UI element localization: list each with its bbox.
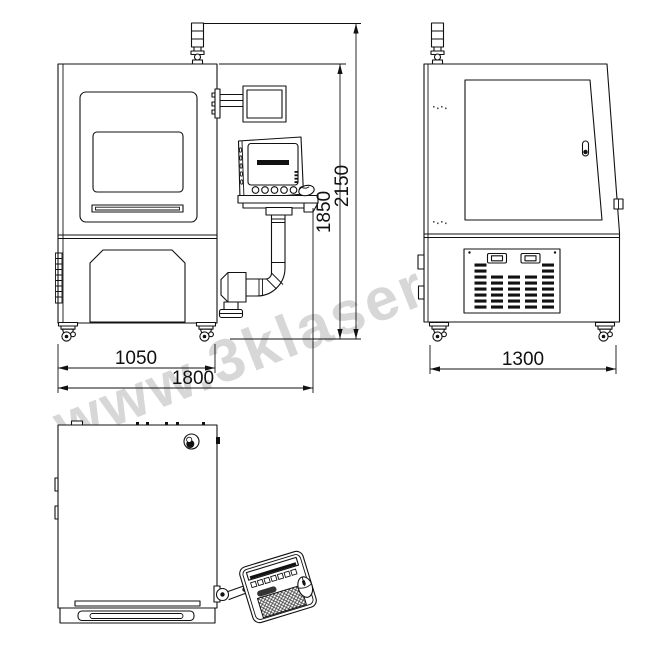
front-cabinet-body xyxy=(58,64,217,323)
front-view xyxy=(56,23,319,341)
side-view xyxy=(418,23,623,341)
vent-latch xyxy=(521,254,540,264)
dim-text-overall-height: 2150 xyxy=(332,165,353,207)
duct-elbow xyxy=(221,273,246,303)
console-top-view xyxy=(238,550,318,625)
panel-shelf xyxy=(238,196,318,204)
caster-wheel xyxy=(430,323,449,342)
vent-panel xyxy=(464,249,560,313)
top-cabinet-body xyxy=(58,425,217,608)
exhaust-duct xyxy=(220,208,293,318)
caster-wheel xyxy=(596,323,615,342)
vent-latch xyxy=(488,254,507,264)
dim-text-side-width: 1300 xyxy=(502,349,544,370)
monitor-arm-assembly xyxy=(212,86,286,122)
control-panel xyxy=(238,137,318,212)
signal-tower-lamp xyxy=(191,23,204,64)
caster-wheel xyxy=(59,323,78,342)
handle-bar xyxy=(78,611,194,621)
signal-tower-lamp xyxy=(431,23,444,64)
top-view xyxy=(55,421,318,624)
monitor xyxy=(243,86,286,122)
laser-machine-drawing: www.3klaser.com xyxy=(0,0,666,666)
dim-text-front-overall-width: 1800 xyxy=(172,368,214,389)
dim-text-front-inner-width: 1050 xyxy=(115,348,157,369)
panel-screen-brand-bar xyxy=(257,160,289,165)
technical-drawing-page: www.3klaser.com xyxy=(0,0,666,666)
